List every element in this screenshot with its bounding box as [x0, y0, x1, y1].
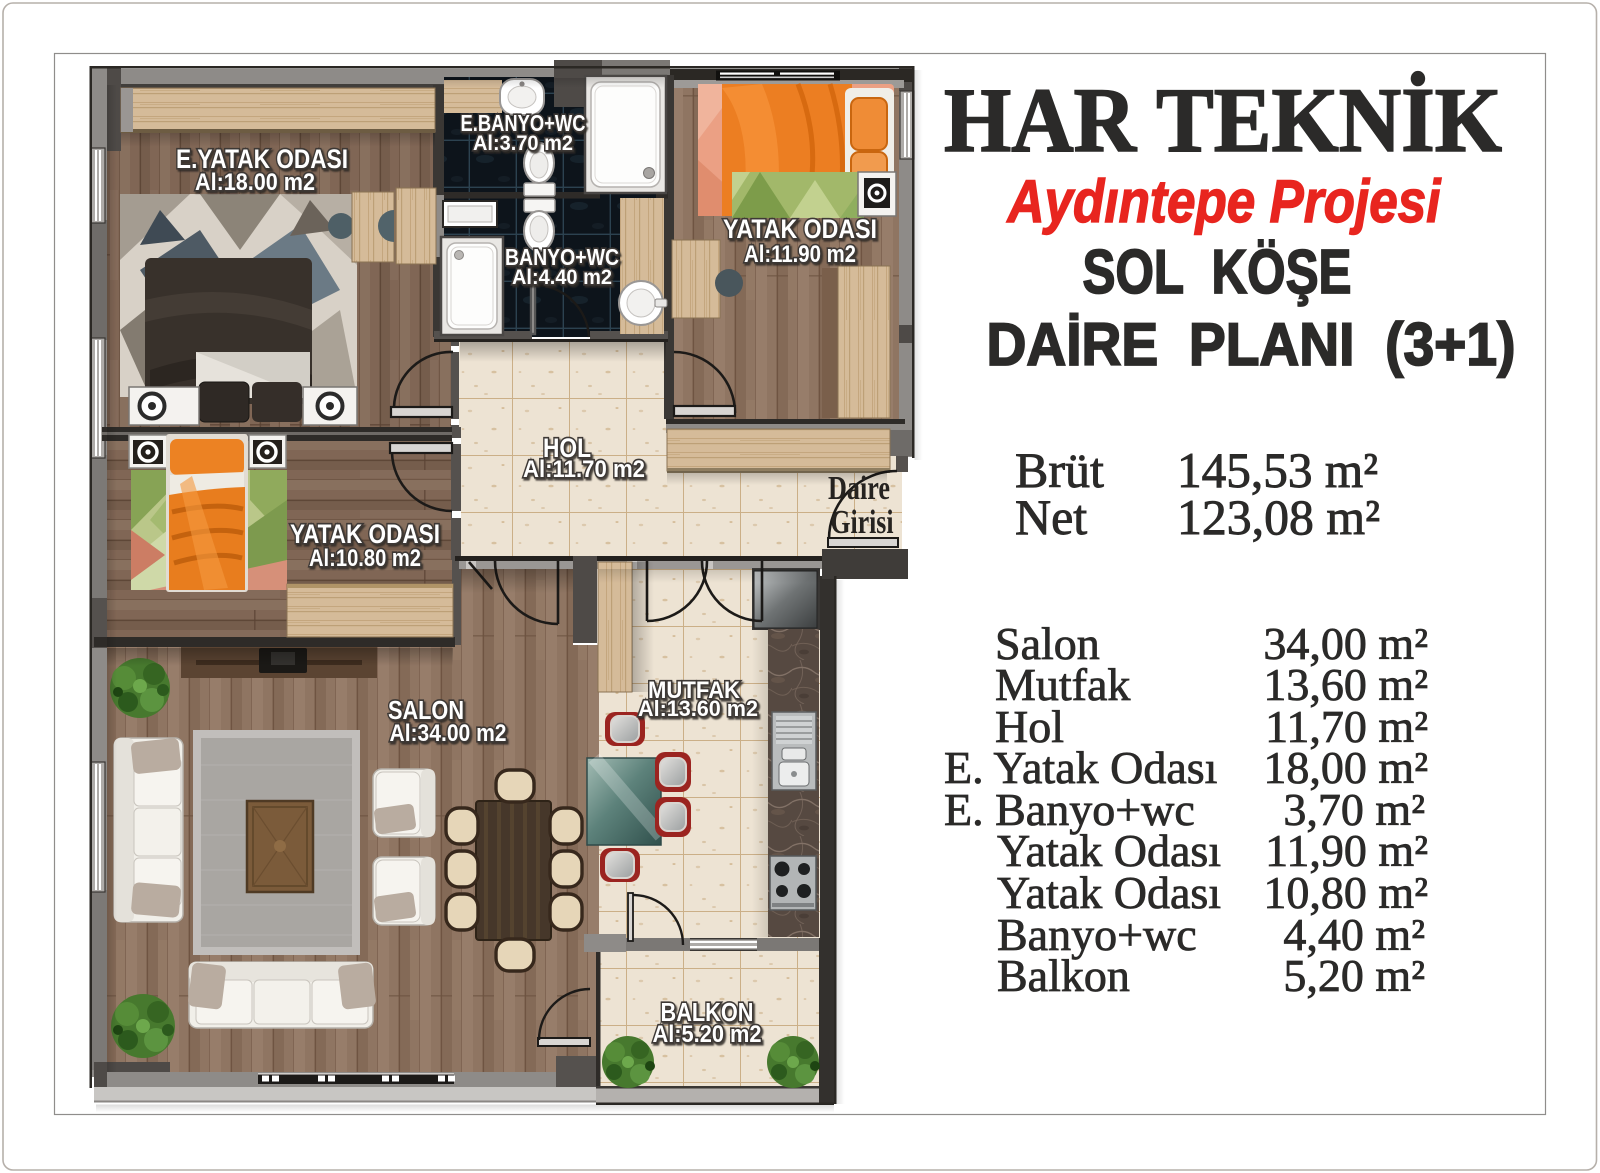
svg-text:5,20 m²: 5,20 m²: [1283, 950, 1425, 1001]
svg-text:Al:34.00 m2: Al:34.00 m2: [390, 720, 507, 747]
svg-text:Balkon: Balkon: [997, 950, 1130, 1001]
svg-text:HAR TEKNİK: HAR TEKNİK: [944, 69, 1502, 171]
svg-text:123,08 m²: 123,08 m²: [1177, 489, 1380, 545]
svg-text:DAİRE PLANI (3+1): DAİRE PLANI (3+1): [987, 311, 1516, 378]
svg-text:Al:11.70 m2: Al:11.70 m2: [523, 456, 645, 483]
svg-text:Al:4.40 m2: Al:4.40 m2: [512, 266, 612, 289]
svg-text:Net: Net: [1015, 489, 1087, 545]
svg-text:Girisi: Girisi: [831, 504, 894, 541]
svg-text:Al:18.00 m2: Al:18.00 m2: [195, 169, 315, 196]
svg-text:Aydıntepe Projesi: Aydıntepe Projesi: [1006, 168, 1442, 235]
svg-text:Al:10.80 m2: Al:10.80 m2: [309, 545, 421, 572]
svg-text:SOL KÖŞE: SOL KÖŞE: [1083, 238, 1352, 307]
svg-text:Daire: Daire: [828, 470, 890, 507]
svg-text:Al:13.60 m2: Al:13.60 m2: [638, 696, 758, 721]
svg-text:Al:5.20 m2: Al:5.20 m2: [653, 1021, 762, 1048]
svg-text:Al:11.90 m2: Al:11.90 m2: [744, 241, 856, 268]
svg-text:YATAK ODASI: YATAK ODASI: [723, 214, 877, 244]
svg-text:Al:3.70 m2: Al:3.70 m2: [473, 132, 573, 155]
